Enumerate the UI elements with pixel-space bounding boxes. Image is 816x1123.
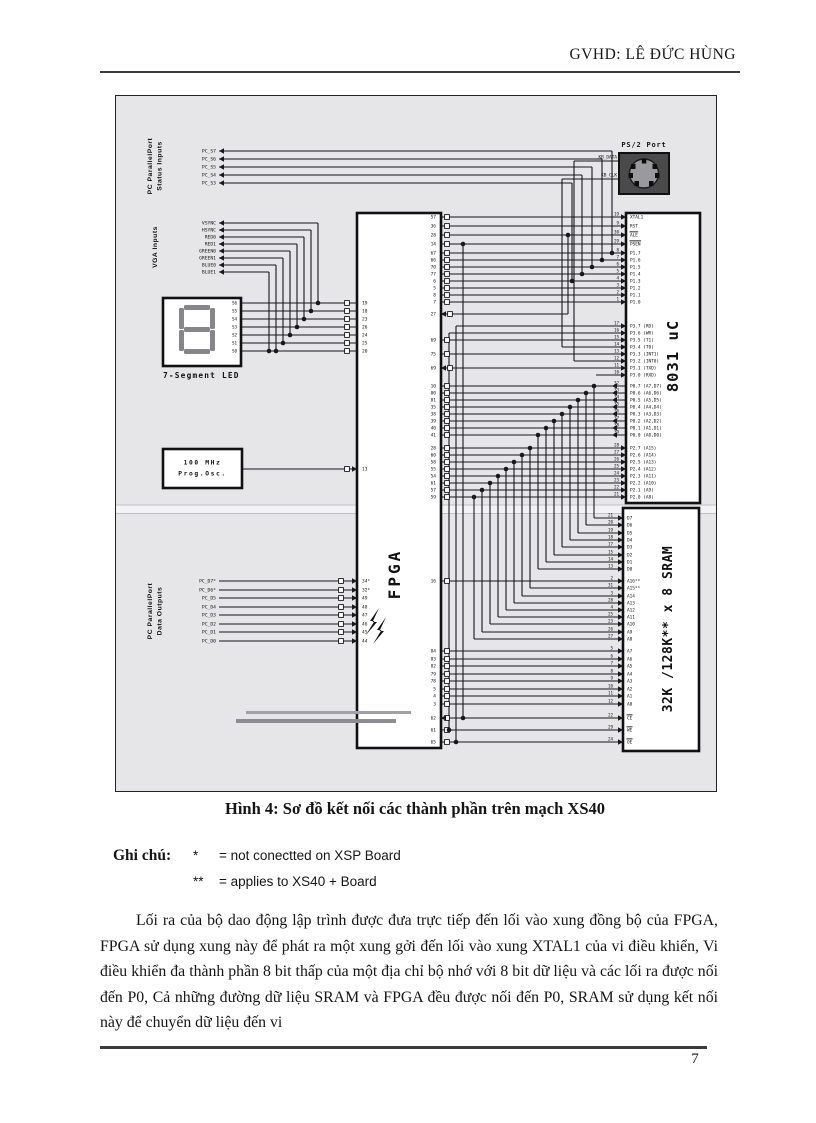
svg-text:P2.5 (A13): P2.5 (A13) xyxy=(630,460,656,466)
svg-text:8: 8 xyxy=(616,248,619,253)
svg-text:26: 26 xyxy=(362,325,368,331)
svg-text:PC_D7*: PC_D7* xyxy=(199,579,216,585)
svg-text:P0.0 (A0,D0): P0.0 (A0,D0) xyxy=(630,433,662,439)
svg-text:23: 23 xyxy=(362,317,368,323)
svg-text:69: 69 xyxy=(431,338,437,344)
svg-text:47: 47 xyxy=(362,613,368,619)
svg-text:KB_DATA: KB_DATA xyxy=(598,155,617,161)
svg-text:20: 20 xyxy=(608,519,614,524)
svg-text:5: 5 xyxy=(610,645,613,650)
svg-text:28: 28 xyxy=(431,446,437,452)
svg-text:GREEN1: GREEN1 xyxy=(199,256,216,262)
note-star-2: ** xyxy=(193,869,219,895)
svg-text:A11: A11 xyxy=(627,615,635,621)
figure-frame: PC_S7PC_S6PC_S5PC_S4PC_S3VSYNCHSYNCRED0R… xyxy=(115,95,717,792)
svg-text:PC ParallelPort: PC ParallelPort xyxy=(147,137,154,194)
prog-osc-box xyxy=(163,449,242,488)
svg-text:P1.6: P1.6 xyxy=(630,258,641,264)
svg-text:16: 16 xyxy=(431,579,437,585)
svg-text:11: 11 xyxy=(614,363,620,368)
svg-text:14: 14 xyxy=(431,242,437,248)
svg-text:25: 25 xyxy=(608,611,614,616)
svg-text:A13: A13 xyxy=(627,601,635,607)
svg-text:P0.2 (A2,D2): P0.2 (A2,D2) xyxy=(630,419,662,425)
svg-text:6: 6 xyxy=(610,653,613,658)
svg-text:6: 6 xyxy=(433,279,436,285)
svg-text:HSYNC: HSYNC xyxy=(202,228,216,234)
svg-text:5: 5 xyxy=(433,286,436,292)
svg-text:40: 40 xyxy=(431,426,437,432)
svg-text:D1: D1 xyxy=(627,560,633,566)
svg-text:17: 17 xyxy=(614,321,620,326)
svg-text:GREEN0: GREEN0 xyxy=(199,249,216,255)
svg-text:61: 61 xyxy=(431,481,437,487)
svg-text:41: 41 xyxy=(431,433,437,439)
svg-text:BLUE1: BLUE1 xyxy=(202,270,216,276)
svg-text:79: 79 xyxy=(431,672,437,678)
svg-text:P0.1 (A1,D1): P0.1 (A1,D1) xyxy=(630,426,662,432)
footer-rule xyxy=(100,1046,707,1049)
svg-text:P0.6 (A6,D6): P0.6 (A6,D6) xyxy=(630,391,662,397)
header-rule xyxy=(100,71,740,73)
svg-text:30: 30 xyxy=(614,230,620,235)
svg-text:P0.3 (A3,D3): P0.3 (A3,D3) xyxy=(630,412,662,418)
paragraph: Lối ra của bộ dao động lập trình được đư… xyxy=(100,908,718,1036)
svg-text:P3.1 (TXD): P3.1 (TXD) xyxy=(630,366,656,372)
svg-text:OE: OE xyxy=(627,740,633,746)
notes-spacer xyxy=(113,869,193,895)
svg-text:77: 77 xyxy=(431,272,437,278)
svg-text:27: 27 xyxy=(608,633,614,638)
svg-text:VGA Inputs: VGA Inputs xyxy=(152,226,159,268)
svg-text:67: 67 xyxy=(431,251,437,257)
svg-text:15: 15 xyxy=(614,335,620,340)
svg-text:58: 58 xyxy=(431,460,437,466)
svg-text:25: 25 xyxy=(362,341,368,347)
svg-text:17: 17 xyxy=(608,541,614,546)
svg-text:1: 1 xyxy=(616,297,619,302)
svg-text:24: 24 xyxy=(608,736,614,741)
svg-text:5: 5 xyxy=(616,269,619,274)
svg-text:7-Segment LED: 7-Segment LED xyxy=(163,371,240,380)
svg-text:3: 3 xyxy=(433,702,436,708)
svg-text:D7: D7 xyxy=(627,516,633,522)
svg-text:PC_S6: PC_S6 xyxy=(202,157,216,163)
svg-text:PC_D0: PC_D0 xyxy=(202,639,216,645)
svg-text:39: 39 xyxy=(614,430,620,435)
svg-text:S4: S4 xyxy=(232,317,238,322)
svg-text:7: 7 xyxy=(616,255,619,260)
svg-text:80: 80 xyxy=(431,391,437,397)
note-text-2: = applies to XS40 + Board xyxy=(219,869,401,895)
svg-text:8: 8 xyxy=(433,293,436,299)
svg-text:4: 4 xyxy=(616,276,619,281)
svg-text:8031 uC: 8031 uC xyxy=(664,320,682,392)
svg-text:2: 2 xyxy=(616,290,619,295)
svg-text:35: 35 xyxy=(614,402,620,407)
svg-text:PC_D1: PC_D1 xyxy=(202,630,216,636)
svg-text:S2: S2 xyxy=(232,333,238,338)
svg-text:A2: A2 xyxy=(627,687,633,693)
svg-text:P2.2 (A10): P2.2 (A10) xyxy=(630,481,656,487)
svg-text:KB_CLK: KB_CLK xyxy=(601,173,617,179)
svg-text:24: 24 xyxy=(362,333,368,339)
svg-text:P1.2: P1.2 xyxy=(630,286,641,292)
svg-text:4: 4 xyxy=(433,694,436,700)
svg-text:9: 9 xyxy=(610,675,613,680)
svg-text:2: 2 xyxy=(610,575,613,580)
svg-text:7: 7 xyxy=(433,300,436,306)
svg-text:29: 29 xyxy=(614,239,620,244)
svg-text:PS/2 Port: PS/2 Port xyxy=(621,141,666,149)
svg-text:28: 28 xyxy=(614,443,620,448)
svg-text:12: 12 xyxy=(608,698,614,703)
svg-text:A9: A9 xyxy=(627,630,633,636)
svg-text:26: 26 xyxy=(614,457,620,462)
svg-text:35: 35 xyxy=(431,405,437,411)
svg-text:PC_S4: PC_S4 xyxy=(202,173,216,179)
svg-text:PC_D6*: PC_D6* xyxy=(199,588,216,594)
svg-text:27: 27 xyxy=(614,450,620,455)
svg-text:P0.7 (A7,D7): P0.7 (A7,D7) xyxy=(630,384,662,390)
svg-text:XTAL1: XTAL1 xyxy=(630,215,644,221)
svg-text:22: 22 xyxy=(614,485,620,490)
svg-text:PC_D2: PC_D2 xyxy=(202,622,216,628)
svg-text:3: 3 xyxy=(610,590,613,595)
svg-text:A6: A6 xyxy=(627,657,633,663)
svg-text:100 MHz: 100 MHz xyxy=(184,460,222,467)
svg-text:78: 78 xyxy=(431,679,437,685)
svg-text:45: 45 xyxy=(362,630,368,636)
svg-text:54: 54 xyxy=(431,474,437,480)
svg-text:11: 11 xyxy=(608,690,614,695)
notes-block: Ghi chú: * = not conectted on XSP Board … xyxy=(113,843,401,895)
svg-text:59: 59 xyxy=(431,495,437,501)
svg-text:14: 14 xyxy=(614,342,620,347)
svg-text:21: 21 xyxy=(614,492,620,497)
svg-text:A8: A8 xyxy=(627,637,633,643)
svg-text:A15**: A15** xyxy=(627,586,641,592)
svg-text:28: 28 xyxy=(608,597,614,602)
svg-text:VSYNC: VSYNC xyxy=(202,221,216,227)
svg-text:66: 66 xyxy=(431,258,437,264)
svg-text:FPGA: FPGA xyxy=(385,549,404,600)
svg-text:38: 38 xyxy=(431,412,437,418)
svg-text:38: 38 xyxy=(614,423,620,428)
svg-text:18: 18 xyxy=(362,309,368,315)
svg-text:ALE: ALE xyxy=(630,233,638,239)
svg-text:PSEN: PSEN xyxy=(630,242,641,248)
svg-text:32*: 32* xyxy=(362,588,370,594)
svg-text:7: 7 xyxy=(610,660,613,665)
svg-text:57: 57 xyxy=(431,215,437,221)
svg-text:25: 25 xyxy=(614,464,620,469)
svg-text:CE: CE xyxy=(627,716,633,722)
svg-text:81: 81 xyxy=(431,398,437,404)
svg-text:15: 15 xyxy=(608,549,614,554)
svg-text:6: 6 xyxy=(616,262,619,267)
svg-text:36: 36 xyxy=(431,224,437,230)
svg-text:83: 83 xyxy=(431,657,437,663)
svg-text:S5: S5 xyxy=(232,309,238,314)
svg-text:37: 37 xyxy=(614,416,620,421)
svg-text:A0: A0 xyxy=(627,702,633,708)
svg-text:10: 10 xyxy=(608,683,614,688)
svg-text:84: 84 xyxy=(431,649,437,655)
notes-label: Ghi chú: xyxy=(113,843,193,869)
svg-text:Data Outputs: Data Outputs xyxy=(157,587,164,636)
page-number: 7 xyxy=(640,1051,750,1068)
svg-text:28: 28 xyxy=(431,233,437,239)
svg-text:P1.7: P1.7 xyxy=(630,251,641,257)
svg-text:18: 18 xyxy=(608,534,614,539)
svg-text:60: 60 xyxy=(431,453,437,459)
svg-text:26: 26 xyxy=(608,626,614,631)
svg-text:D4: D4 xyxy=(627,538,633,544)
svg-text:P1.4: P1.4 xyxy=(630,272,641,278)
svg-text:A16**: A16** xyxy=(627,579,641,585)
svg-text:P2.4 (A12): P2.4 (A12) xyxy=(630,467,656,473)
svg-text:RED1: RED1 xyxy=(205,242,216,248)
svg-text:P2.6 (A14): P2.6 (A14) xyxy=(630,453,656,459)
svg-text:D3: D3 xyxy=(627,545,633,551)
svg-text:13: 13 xyxy=(362,467,368,473)
svg-text:62: 62 xyxy=(431,716,437,722)
figure-caption: Hình 4: Sơ đồ kết nối các thành phần trê… xyxy=(115,799,715,819)
svg-text:16: 16 xyxy=(614,328,620,333)
svg-text:A1: A1 xyxy=(627,694,633,700)
svg-text:P2.3 (A11): P2.3 (A11) xyxy=(630,474,656,480)
svg-text:23: 23 xyxy=(614,478,620,483)
svg-text:S3: S3 xyxy=(232,325,238,330)
svg-text:A10: A10 xyxy=(627,622,635,628)
svg-text:S0: S0 xyxy=(232,349,238,354)
svg-text:D5: D5 xyxy=(627,531,633,537)
svg-text:S6: S6 xyxy=(232,301,238,306)
svg-text:13: 13 xyxy=(614,349,620,354)
svg-text:D0: D0 xyxy=(627,567,633,573)
svg-text:A5: A5 xyxy=(627,664,633,670)
svg-text:14: 14 xyxy=(608,556,614,561)
svg-text:75: 75 xyxy=(431,352,437,358)
svg-text:13: 13 xyxy=(608,563,614,568)
seven-segment-glyph xyxy=(210,330,215,351)
svg-text:P1.3: P1.3 xyxy=(630,279,641,285)
note-text-1: = not conectted on XSP Board xyxy=(219,843,401,869)
svg-text:BLUE0: BLUE0 xyxy=(202,263,216,269)
svg-text:P1.5: P1.5 xyxy=(630,265,641,271)
svg-text:A14: A14 xyxy=(627,594,635,600)
svg-text:82: 82 xyxy=(431,664,437,670)
svg-text:27: 27 xyxy=(431,312,437,318)
svg-text:A3: A3 xyxy=(627,679,633,685)
svg-text:5: 5 xyxy=(433,687,436,693)
svg-text:65: 65 xyxy=(431,740,437,746)
svg-text:PC_S5: PC_S5 xyxy=(202,165,216,171)
svg-text:P3.5 (T1): P3.5 (T1) xyxy=(630,338,654,344)
svg-text:10: 10 xyxy=(431,384,437,390)
seven-segment-glyph xyxy=(179,330,184,351)
svg-text:4: 4 xyxy=(610,604,613,609)
svg-text:PC_S7: PC_S7 xyxy=(202,149,216,155)
svg-text:RST: RST xyxy=(630,224,638,230)
svg-text:44: 44 xyxy=(362,639,368,645)
svg-text:33: 33 xyxy=(614,388,620,393)
svg-text:61: 61 xyxy=(431,728,437,734)
seven-segment-glyph xyxy=(210,308,215,329)
svg-text:P3.4 (T0): P3.4 (T0) xyxy=(630,345,654,351)
svg-text:P2.7 (A15): P2.7 (A15) xyxy=(630,446,656,452)
svg-text:A7: A7 xyxy=(627,649,633,655)
svg-text:19: 19 xyxy=(608,527,614,532)
svg-text:P0.4 (A4,D4): P0.4 (A4,D4) xyxy=(630,405,662,411)
svg-text:PC ParallelPort: PC ParallelPort xyxy=(147,582,154,639)
svg-text:P1.0: P1.0 xyxy=(630,300,641,306)
svg-text:A12: A12 xyxy=(627,608,635,614)
svg-text:RED0: RED0 xyxy=(205,235,216,241)
svg-text:39: 39 xyxy=(431,419,437,425)
document-page: GVHD: LÊ ĐỨC HÙNG PC_S7PC_S6PC_S5PC_S4PC… xyxy=(0,0,816,1123)
svg-text:12: 12 xyxy=(614,356,620,361)
svg-text:D6: D6 xyxy=(627,523,633,529)
svg-text:P2.0 (A8): P2.0 (A8) xyxy=(630,495,654,501)
svg-text:31: 31 xyxy=(608,582,614,587)
svg-text:46: 46 xyxy=(362,622,368,628)
note-star-1: * xyxy=(193,843,219,869)
svg-text:10: 10 xyxy=(614,370,620,375)
svg-text:24: 24 xyxy=(614,471,620,476)
seven-segment-glyph xyxy=(184,327,210,332)
seven-segment-glyph xyxy=(184,305,210,310)
xs40-schematic: PC_S7PC_S6PC_S5PC_S4PC_S3VSYNCHSYNCRED0R… xyxy=(116,96,716,791)
svg-text:34: 34 xyxy=(614,395,620,400)
svg-text:9: 9 xyxy=(616,221,619,226)
svg-text:55: 55 xyxy=(431,467,437,473)
svg-text:19: 19 xyxy=(362,301,368,307)
header-text: GVHD: LÊ ĐỨC HÙNG xyxy=(570,46,736,64)
svg-text:P0.5 (A5,D5): P0.5 (A5,D5) xyxy=(630,398,662,404)
svg-text:Status Inputs: Status Inputs xyxy=(157,141,164,191)
svg-text:P3.0 (RXD): P3.0 (RXD) xyxy=(630,373,656,379)
svg-text:P3.7 (RD): P3.7 (RD) xyxy=(630,324,654,330)
svg-text:P3.2 (INT0): P3.2 (INT0) xyxy=(630,359,659,365)
svg-text:PC_D4: PC_D4 xyxy=(202,605,216,611)
svg-text:48: 48 xyxy=(362,605,368,611)
svg-text:32: 32 xyxy=(614,381,620,386)
svg-text:3: 3 xyxy=(616,283,619,288)
svg-text:S1: S1 xyxy=(232,341,238,346)
svg-text:49: 49 xyxy=(362,596,368,602)
svg-text:Prog.Osc.: Prog.Osc. xyxy=(178,471,227,478)
svg-text:PC_D3: PC_D3 xyxy=(202,613,216,619)
svg-text:57: 57 xyxy=(431,488,437,494)
svg-text:70: 70 xyxy=(431,265,437,271)
svg-text:69: 69 xyxy=(431,366,437,372)
fpga-box xyxy=(357,213,441,748)
svg-text:23: 23 xyxy=(608,618,614,623)
seven-segment-glyph xyxy=(184,349,210,354)
svg-text:20: 20 xyxy=(362,349,368,355)
svg-text:P1.1: P1.1 xyxy=(630,293,641,299)
svg-text:WE: WE xyxy=(627,728,633,734)
svg-text:21: 21 xyxy=(608,512,614,517)
seven-segment-glyph xyxy=(179,308,184,329)
svg-text:34*: 34* xyxy=(362,579,370,585)
svg-text:P3.6 (WR): P3.6 (WR) xyxy=(630,331,654,337)
svg-text:P3.3 (INT1): P3.3 (INT1) xyxy=(630,352,659,358)
svg-text:32K /128K** x 8 SRAM: 32K /128K** x 8 SRAM xyxy=(661,546,676,713)
svg-text:D2: D2 xyxy=(627,553,633,559)
svg-text:PC_D5: PC_D5 xyxy=(202,596,216,602)
svg-text:8: 8 xyxy=(610,668,613,673)
svg-text:36: 36 xyxy=(614,409,620,414)
svg-text:PC_S3: PC_S3 xyxy=(202,181,216,187)
svg-text:P2.1 (A9): P2.1 (A9) xyxy=(630,488,654,494)
svg-text:22: 22 xyxy=(608,712,614,717)
svg-text:19: 19 xyxy=(614,212,620,217)
svg-text:29: 29 xyxy=(608,724,614,729)
svg-text:A4: A4 xyxy=(627,672,633,678)
